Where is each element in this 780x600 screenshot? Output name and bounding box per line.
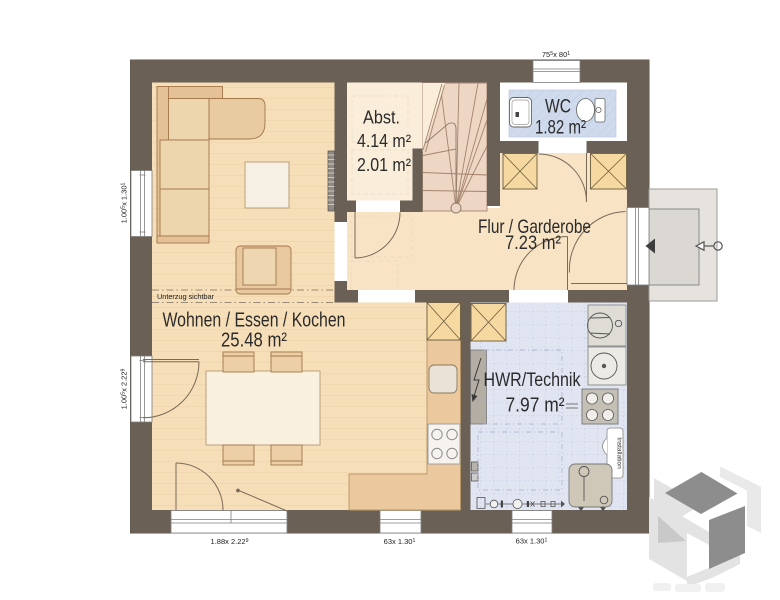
svg-text:Abst.: Abst. — [363, 108, 400, 128]
svg-text:1.005x 1.301: 1.005x 1.301 — [120, 182, 129, 223]
svg-text:1.82 m²: 1.82 m² — [535, 118, 586, 139]
svg-text:WC: WC — [545, 97, 571, 118]
svg-text:755x 801: 755x 801 — [542, 50, 570, 59]
svg-text:2.01 m²: 2.01 m² — [357, 155, 411, 175]
svg-text:7.97 m²: 7.97 m² — [506, 395, 565, 417]
svg-text:63x 1.301: 63x 1.301 — [516, 537, 548, 546]
svg-text:Installation: Installation — [616, 437, 623, 469]
svg-text:1.88x 2.229: 1.88x 2.229 — [211, 537, 249, 546]
svg-text:63x 1.301: 63x 1.301 — [384, 537, 416, 546]
svg-text:1.005x 2.229: 1.005x 2.229 — [120, 368, 129, 409]
svg-text:Unterzug sichtbar: Unterzug sichtbar — [157, 292, 215, 301]
svg-text:7.23 m²: 7.23 m² — [505, 232, 561, 254]
svg-text:HWR/Technik: HWR/Technik — [484, 369, 581, 391]
svg-text:4.14 m²: 4.14 m² — [357, 131, 411, 151]
svg-text:25.48 m²: 25.48 m² — [221, 329, 287, 352]
